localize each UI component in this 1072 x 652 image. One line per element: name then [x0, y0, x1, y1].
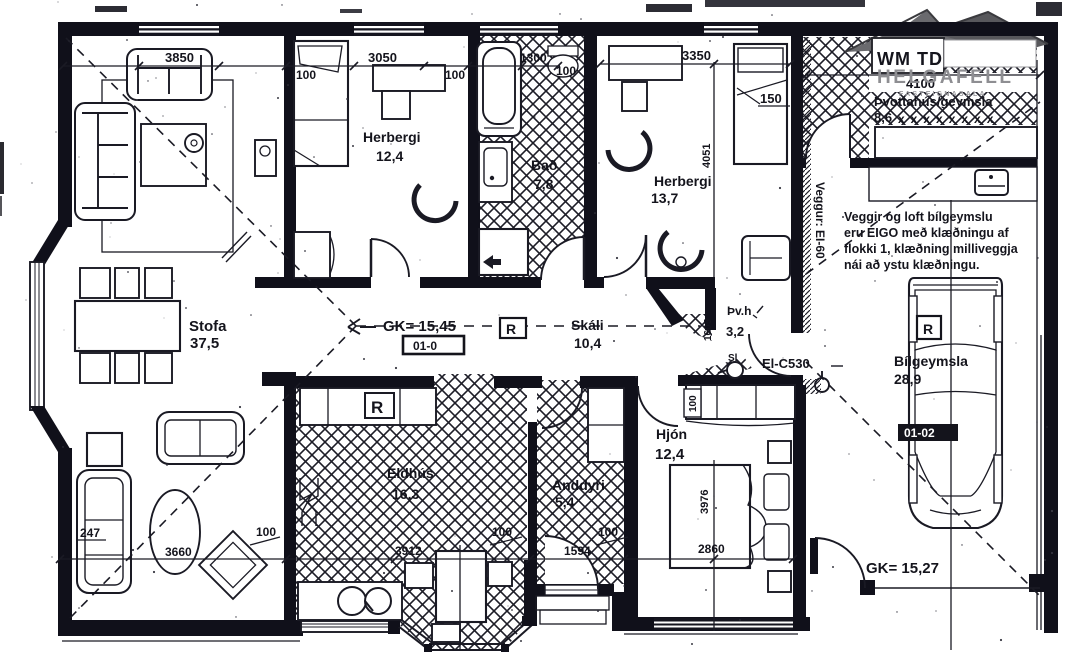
svg-text:R: R — [506, 321, 516, 337]
svg-text:37,5: 37,5 — [190, 335, 219, 352]
svg-text:4051: 4051 — [701, 144, 713, 168]
svg-text:3050: 3050 — [368, 50, 397, 65]
svg-text:16,3: 16,3 — [392, 486, 419, 502]
svg-text:Hjón: Hjón — [656, 426, 687, 442]
svg-text:100: 100 — [445, 68, 465, 82]
svg-text:100: 100 — [296, 68, 316, 82]
svg-text:GK= 15,27: GK= 15,27 — [866, 560, 939, 577]
svg-text:2860: 2860 — [698, 542, 725, 556]
svg-text:Eldhús: Eldhús — [387, 465, 434, 481]
svg-text:100: 100 — [556, 64, 576, 78]
svg-text:12,4: 12,4 — [655, 446, 685, 463]
svg-text:01-02: 01-02 — [904, 426, 935, 440]
svg-text:3,2: 3,2 — [726, 324, 744, 339]
svg-text:1605: 1605 — [703, 318, 714, 341]
svg-text:Anddyri: Anddyri — [552, 477, 605, 493]
svg-text:3850: 3850 — [165, 50, 194, 65]
svg-text:Sl: Sl — [728, 353, 738, 364]
svg-text:Veggir og loft bílgeymslu: Veggir og loft bílgeymslu — [844, 210, 993, 224]
svg-text:R: R — [923, 321, 933, 337]
svg-text:GK= 15,45: GK= 15,45 — [383, 318, 456, 335]
svg-text:3350: 3350 — [682, 48, 711, 63]
svg-text:Bað: Bað — [531, 157, 557, 173]
svg-text:Skáli: Skáli — [571, 317, 604, 333]
svg-text:eru EIGO með klæðningu af: eru EIGO með klæðningu af — [844, 226, 1009, 240]
svg-text:HELGAFELL: HELGAFELL — [877, 67, 1014, 88]
svg-text:1594: 1594 — [564, 544, 591, 558]
svg-text:28,9: 28,9 — [894, 371, 921, 387]
svg-text:100: 100 — [598, 525, 618, 539]
svg-text:150: 150 — [760, 91, 782, 106]
svg-text:Herbergi: Herbergi — [654, 173, 712, 189]
svg-text:R: R — [371, 398, 383, 417]
svg-text:100: 100 — [688, 395, 699, 412]
svg-text:Þv.h: Þv.h — [727, 304, 751, 318]
svg-text:13,7: 13,7 — [651, 190, 678, 206]
svg-text:12,4: 12,4 — [376, 148, 403, 164]
svg-text:El-C530: El-C530 — [762, 356, 810, 371]
svg-text:xxxxxxxx: xxxxxxxx — [898, 112, 999, 126]
svg-text:5,4: 5,4 — [555, 494, 575, 510]
svg-text:7,8: 7,8 — [534, 176, 554, 192]
svg-text:100: 100 — [256, 525, 276, 539]
svg-text:flokki 1, klæðning milliveggja: flokki 1, klæðning milliveggja — [844, 242, 1019, 256]
svg-text:01-0: 01-0 — [413, 339, 437, 353]
svg-text:WM TD: WM TD — [877, 49, 943, 69]
svg-text:8,6: 8,6 — [874, 110, 892, 125]
svg-text:10,4: 10,4 — [574, 335, 601, 351]
svg-text:nái að ystu klæðningu.: nái að ystu klæðningu. — [844, 258, 979, 272]
svg-text:Veggur: EI-60: Veggur: EI-60 — [813, 182, 827, 259]
svg-text:Herbergi: Herbergi — [363, 129, 421, 145]
svg-text:Stofa: Stofa — [189, 318, 227, 335]
svg-text:3976: 3976 — [699, 490, 711, 514]
svg-text:Bílgeymsla: Bílgeymsla — [894, 353, 968, 369]
svg-text:100: 100 — [492, 525, 512, 539]
svg-text:FASTEIGNASALA: FASTEIGNASALA — [899, 91, 987, 98]
svg-text:247: 247 — [80, 526, 100, 540]
svg-text:3660: 3660 — [165, 545, 192, 559]
